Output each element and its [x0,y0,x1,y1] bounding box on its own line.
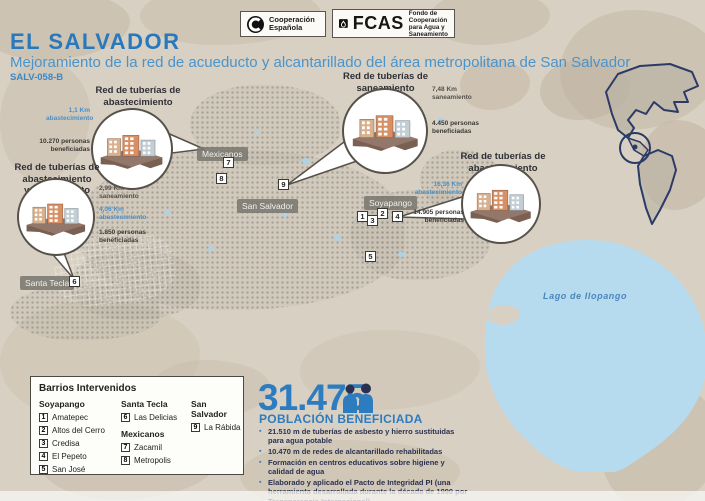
callout-stat: 10.270 personas beneficiadas [30,138,90,153]
callout-title-line: Red de tuberías de [443,151,563,163]
population-label: POBLACIÓN BENEFICIADA [259,412,423,426]
callout-stat: 2,99 Km saneamiento [99,185,153,200]
page-title: EL SALVADOR [10,29,181,55]
legend-item-label: Altos del Cerro [52,426,105,435]
stat-label: saneamiento [432,94,486,102]
place-label-soyapango: Soyapango [364,196,417,210]
legend-item: 3Credisa [39,437,105,450]
fcas-line2: para Agua y Saneamiento [409,24,448,38]
building-illustration [24,197,88,238]
legend-item-label: Metropolis [134,456,171,465]
stat-value: 2,99 Km [99,185,153,193]
callout-stat: 16,36 Km abastecimiento [414,181,462,196]
place-label-santa-tecla: Santa Tecla [20,276,74,290]
legend-col-1: Soyapango 1Amatepec 2Altos del Cerro 3Cr… [39,399,105,476]
legend-item: 8Metropolis [121,454,177,467]
stat-value: 1,1 Km [46,107,90,115]
legend-item-label: El Pepeto [52,452,87,461]
legend-item-label: San José [52,465,85,474]
legend-item: 9La Rábida [191,421,243,434]
stat-label: beneficiadas [99,237,155,245]
legend-item-num: 3 [39,439,48,448]
map-marker-5: 5 [365,251,376,262]
fcas-logo: FCAS Fondo de Cooperación para Agua y Sa… [332,9,455,38]
legend-item: 6Las Delicias [121,411,177,424]
project-code: SALV-058-B [10,72,63,83]
infographic-root: Lago de Ilopango Mexicanos San Salvador … [0,0,705,501]
building-illustration [350,108,421,153]
map-marker-7: 7 [223,157,234,168]
stat-value: 14.905 personas [410,209,464,217]
legend-item-num: 8 [121,456,130,465]
callout-title-line: Red de tuberías de [82,85,194,97]
stat-label: abastecimiento [46,115,90,123]
stat-value: 4,06 Km [99,206,153,214]
place-label-san-salvador: San Salvador [237,199,298,213]
aecid-logo-icon [247,16,264,33]
callout-bubble-saneamiento [342,88,428,174]
legend-group-name: Soyapango [39,399,105,409]
people-icon [340,383,376,413]
callout-stat: 1.850 personas beneficiadas [99,229,155,244]
callout-stat: 1,1 Km abastecimiento [46,107,90,122]
callout-stat: 7,48 Km saneamiento [432,86,486,101]
callout-stat: 14.905 personas beneficiadas [410,209,464,224]
legend-item-label: Amatepec [52,413,88,422]
callout-title: Red de tuberías de abastecimiento [82,85,194,108]
legend-col-2: Santa Tecla 6Las Delicias Mexicanos 7Zac… [121,399,177,467]
bullet-text: Formación en centros educativos sobre hi… [268,458,445,476]
map-marker-2: 2 [377,208,388,219]
legend-item-label: La Rábida [204,423,240,432]
stat-label: beneficiadas [410,217,464,225]
callout-title-line: abastecimiento [82,97,194,109]
legend-group-name: San Salvador [191,399,243,419]
fcas-acronym: FCAS [353,13,404,34]
stat-label: abastecimiento [414,189,462,197]
map-marker-9: 9 [278,179,289,190]
legend-group-name: Mexicanos [121,429,177,439]
legend-item-num: 6 [121,413,130,422]
stat-value: 7,48 Km [432,86,486,94]
aecid-logo-text: Cooperación Española [269,16,315,33]
stat-value: 1.850 personas [99,229,155,237]
map-marker-4: 4 [392,211,403,222]
callout-bubble-abastecimiento-este [461,164,541,244]
bullet-text: 10.470 m de redes de alcantarillado reha… [268,447,442,456]
legend-item: 7Zacamil [121,441,177,454]
legend-item: 2Altos del Cerro [39,424,105,437]
legend-col-3: San Salvador 9La Rábida [191,399,243,434]
callout-stat: 4.450 personas beneficiadas [432,120,490,135]
legend-item: 4El Pepeto [39,450,105,463]
stat-value: 10.270 personas [30,138,90,146]
achievement-bullets: 21.510 m de tuberías de asbesto y hierro… [259,427,471,501]
legend-item-label: Zacamil [134,443,162,452]
fcas-line1: Fondo de Cooperación [409,10,448,24]
bottom-band [0,491,705,501]
stat-label: abastecimiento [99,214,153,222]
legend-item-num: 5 [39,465,48,474]
legend-item-num: 2 [39,426,48,435]
stat-label: beneficiadas [30,146,90,154]
legend-item-num: 4 [39,452,48,461]
legend-item: 5San José [39,463,105,476]
legend-item-num: 9 [191,423,200,432]
aecid-logo: Cooperación Española [240,11,326,37]
building-illustration [468,183,533,225]
aecid-line2: Española [269,24,315,33]
water-drop-icon [339,14,348,33]
stat-value: 4.450 personas [432,120,490,128]
map-marker-8: 8 [216,173,227,184]
bullet-item: Formación en centros educativos sobre hi… [259,458,471,477]
callout-title-line: Red de tuberías de [6,162,108,174]
stat-label: beneficiadas [432,128,490,136]
map-marker-3: 3 [367,215,378,226]
legend-group-name: Santa Tecla [121,399,177,409]
building-illustration [98,128,165,171]
stat-label: saneamiento [99,193,153,201]
callout-bubble-abastecimiento-saneamiento [17,178,95,256]
page-subtitle: Mejoramiento de la red de acueducto y al… [10,54,670,71]
legend-item-num: 1 [39,413,48,422]
legend-item-num: 7 [121,443,130,452]
callout-stat: 4,06 Km abastecimiento [99,206,153,221]
stat-value: 16,36 Km [414,181,462,189]
legend-item: 1Amatepec [39,411,105,424]
bullet-item: 10.470 m de redes de alcantarillado reha… [259,447,471,456]
legend-title: Barrios Intervenidos [39,383,136,394]
bullet-text: 21.510 m de tuberías de asbesto y hierro… [268,427,454,445]
bullet-item: 21.510 m de tuberías de asbesto y hierro… [259,427,471,446]
callout-title-line: Red de tuberías de [328,71,443,83]
legend-item-label: Credisa [52,439,80,448]
legend-box: Barrios Intervenidos Soyapango 1Amatepec… [30,376,244,475]
fcas-logo-text: Fondo de Cooperación para Agua y Saneami… [409,10,448,38]
map-marker-6: 6 [69,276,80,287]
legend-item-label: Las Delicias [134,413,177,422]
